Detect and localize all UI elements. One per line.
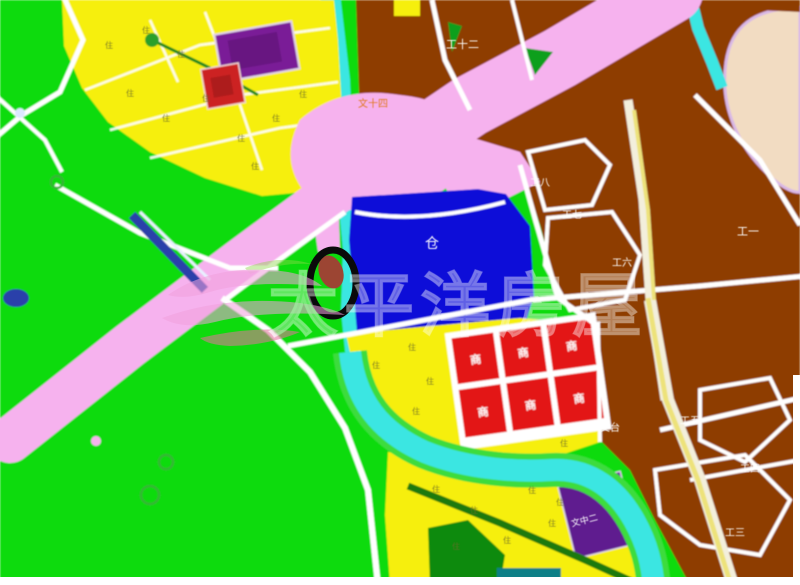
svg-text:商: 商	[517, 345, 530, 360]
svg-text:商: 商	[524, 397, 537, 412]
svg-text:住: 住	[202, 93, 210, 103]
svg-text:住: 住	[452, 541, 460, 551]
tree-blob	[145, 33, 159, 47]
svg-text:住: 住	[528, 485, 536, 495]
svg-text:住: 住	[426, 376, 434, 386]
frame-right	[793, 375, 800, 577]
svg-text:住: 住	[142, 25, 150, 35]
svg-text:住: 住	[105, 40, 113, 50]
parcel-top-label: 文十四	[358, 97, 388, 110]
svg-text:工十二: 工十二	[446, 37, 479, 51]
svg-text:商: 商	[573, 391, 586, 406]
svg-text:工三: 工三	[725, 528, 745, 539]
svg-text:商: 商	[469, 352, 482, 367]
svg-text:住: 住	[299, 89, 307, 99]
svg-text:住: 住	[560, 438, 568, 448]
svg-text:住: 住	[177, 49, 185, 59]
svg-text:住: 住	[237, 133, 245, 143]
svg-text:住: 住	[372, 360, 380, 370]
svg-text:工一: 工一	[737, 225, 759, 238]
watermark-text: 太平洋房屋	[268, 265, 648, 347]
frame-bottom	[0, 577, 800, 585]
svg-text:住: 住	[162, 113, 170, 123]
map-canvas: 商 商 商 商 商 商	[0, 0, 800, 585]
svg-text:工八: 工八	[530, 178, 550, 189]
svg-text:住: 住	[126, 88, 134, 98]
svg-text:文台: 文台	[600, 421, 620, 434]
pink-dot	[91, 436, 101, 446]
svg-text:住: 住	[556, 497, 564, 507]
svg-text:商: 商	[477, 404, 490, 419]
watermark: 太平洋房屋	[162, 260, 648, 347]
svg-text:住: 住	[412, 406, 420, 416]
svg-text:住: 住	[470, 505, 478, 515]
svg-text:住: 住	[432, 484, 440, 494]
svg-text:住: 住	[251, 161, 259, 171]
svg-text:工四: 工四	[740, 464, 760, 475]
svg-text:住: 住	[503, 535, 511, 545]
pond-west	[3, 289, 29, 307]
junction-blob	[15, 108, 25, 118]
svg-text:住: 住	[548, 518, 556, 528]
svg-text:住: 住	[272, 113, 280, 123]
zoning-map: 商 商 商 商 商 商	[0, 0, 800, 585]
yellow-sliver-top	[394, 0, 420, 16]
svg-text:工七: 工七	[562, 209, 582, 221]
svg-text:工五: 工五	[680, 416, 700, 427]
warehouse-label: 仓	[425, 236, 439, 252]
